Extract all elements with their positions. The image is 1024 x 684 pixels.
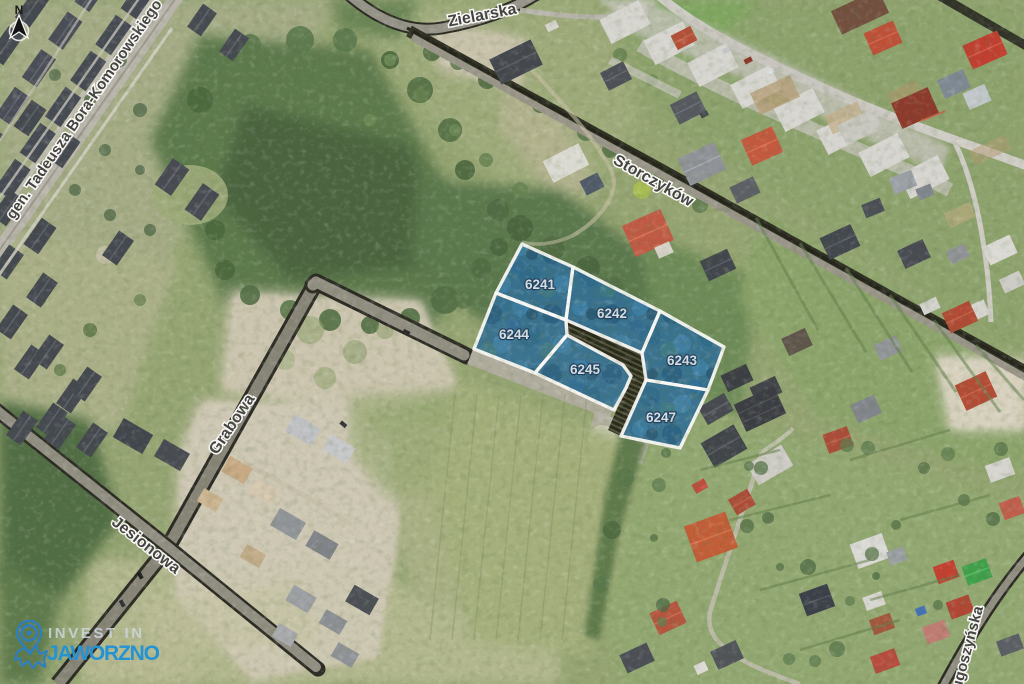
svg-text:JAWORZNO: JAWORZNO: [47, 642, 160, 665]
svg-text:INVEST IN: INVEST IN: [48, 625, 145, 642]
